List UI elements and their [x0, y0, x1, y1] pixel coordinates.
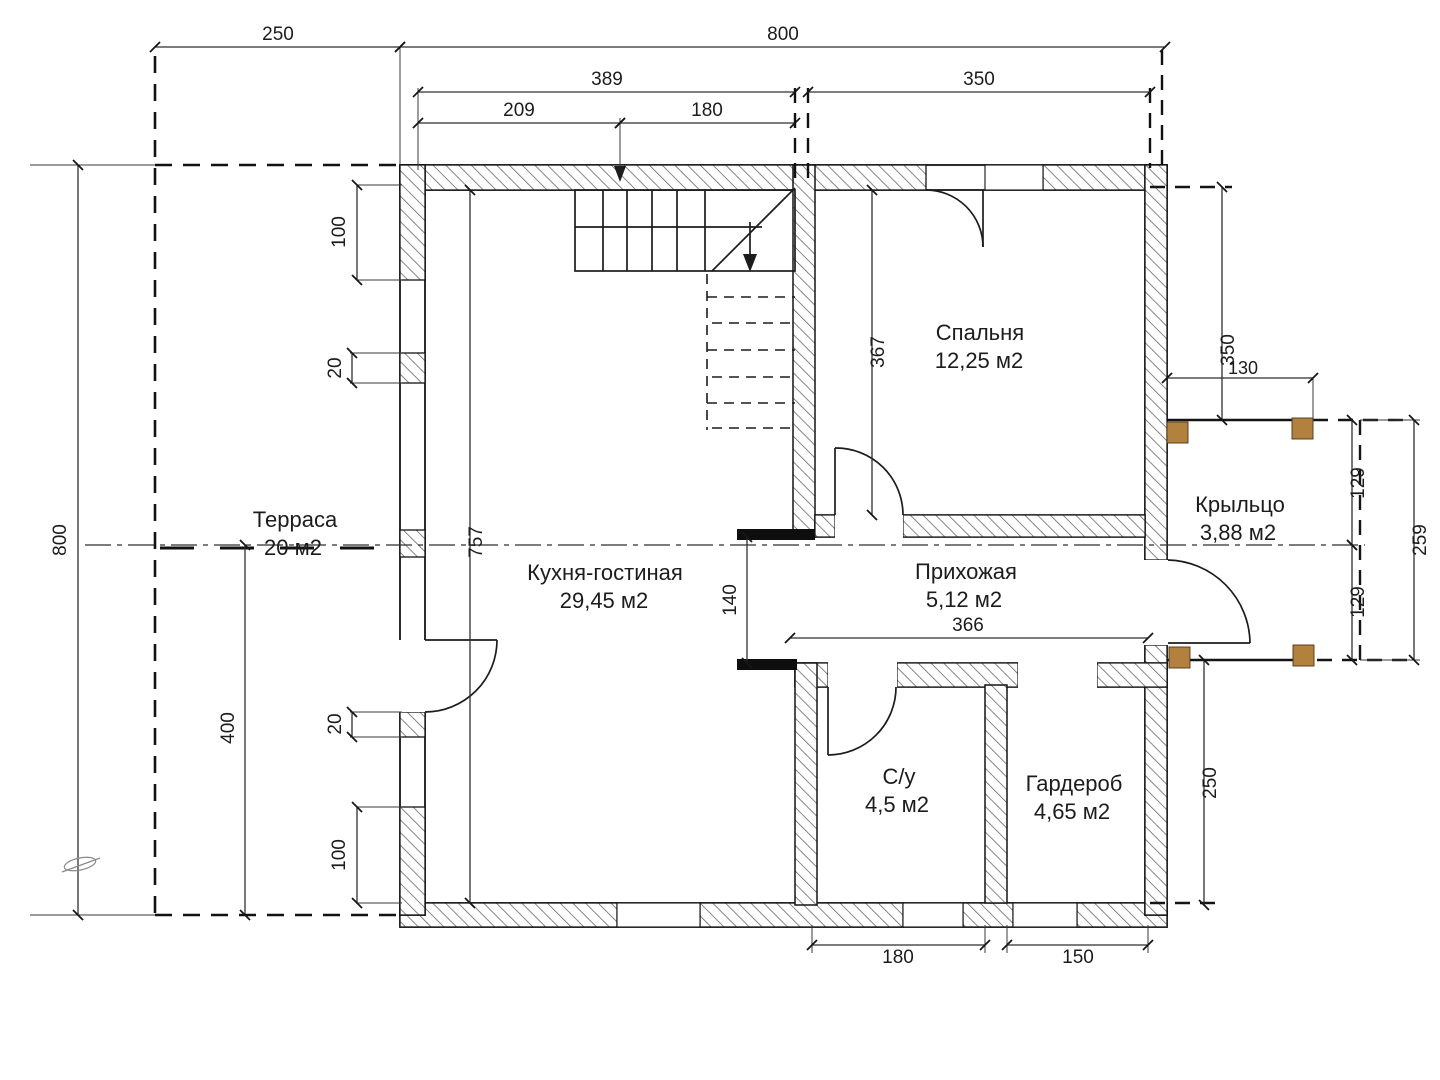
dim-label: 250 — [262, 24, 294, 45]
room-area: 4,5 м2 — [865, 792, 929, 817]
wall-segment — [815, 515, 835, 537]
door-bedroom-hall — [835, 448, 903, 515]
wall-segment — [1097, 663, 1167, 687]
porch-post — [1167, 422, 1188, 443]
room-name: Спальня — [936, 320, 1024, 345]
dim-label: 180 — [691, 100, 723, 121]
room-label-wardrobe: Гардероб 4,65 м2 — [1026, 771, 1123, 824]
dim-label: 350 — [1218, 334, 1239, 366]
exterior-wall-top — [400, 165, 1167, 190]
window-opening — [903, 903, 963, 927]
dim-label: 20 — [325, 357, 346, 378]
stair-down-arrow — [743, 254, 757, 272]
wall-bath-wardrobe — [985, 685, 1007, 903]
dim-label: 100 — [329, 216, 350, 248]
wall-bath-left — [795, 663, 817, 905]
porch-post — [1292, 418, 1313, 439]
dim-label: 129 — [1348, 586, 1369, 618]
staircase-lower-flight — [707, 274, 795, 430]
wall-segment — [400, 807, 425, 915]
staircase — [575, 188, 795, 272]
floor-plan: 250 800 389 350 209 180 366 180 150 130 … — [0, 0, 1440, 1080]
room-name: Гардероб — [1026, 771, 1123, 796]
porch-post — [1169, 647, 1190, 668]
room-label-porch: Крыльцо 3,88 м2 — [1195, 492, 1285, 545]
door-front — [1168, 560, 1250, 643]
room-area: 20 м2 — [264, 535, 322, 560]
door-opening-wardrobe — [1018, 661, 1097, 689]
exterior-wall-right — [1143, 165, 1169, 915]
wall-segment — [400, 165, 425, 280]
room-area: 3,88 м2 — [1200, 520, 1276, 545]
dim-label: 800 — [50, 524, 71, 556]
dim-label: 250 — [1200, 767, 1221, 799]
room-name: Терраса — [253, 507, 338, 532]
wall-segment — [400, 903, 617, 927]
dim-label: 259 — [1410, 524, 1431, 556]
dim-label: 367 — [868, 336, 889, 368]
wall-segment — [1145, 165, 1167, 560]
dim-label: 757 — [466, 526, 487, 558]
room-area: 4,65 м2 — [1034, 799, 1110, 824]
wall-segment — [700, 903, 903, 927]
room-label-terrace: Терраса 20 м2 — [253, 507, 338, 560]
window-opening — [1013, 903, 1077, 927]
dim-label: 20 — [325, 713, 346, 734]
door-bath — [828, 687, 896, 755]
wall-segment — [963, 903, 1013, 927]
wall-segment — [400, 165, 926, 190]
dim-label: 800 — [767, 24, 799, 45]
dim-label: 180 — [882, 947, 914, 968]
window-opening — [617, 903, 700, 927]
dim-label: 389 — [591, 69, 623, 90]
room-name: С/у — [883, 764, 916, 789]
wall-bedroom-hall — [815, 513, 1145, 539]
room-label-hallway: Прихожая 5,12 м2 — [915, 559, 1017, 612]
dim-label: 366 — [952, 615, 984, 636]
window-opening — [985, 165, 1043, 190]
door-bedroom-top — [926, 190, 983, 247]
wall-segment — [400, 530, 425, 557]
dim-label: 129 — [1348, 467, 1369, 499]
wall-kitchen-bedroom — [793, 165, 815, 537]
dim-label: 150 — [1062, 947, 1094, 968]
room-label-kitchen: Кухня-гостиная 29,45 м2 — [527, 560, 683, 613]
door-opening-terrace — [398, 640, 427, 712]
door-terrace — [425, 640, 497, 712]
door-opening-bedroom — [835, 513, 903, 539]
porch-post — [1293, 645, 1314, 666]
door-opening-bath — [828, 661, 897, 689]
hall-opening-stubs — [737, 529, 815, 670]
room-name: Прихожая — [915, 559, 1017, 584]
sketch-mark — [62, 855, 100, 873]
room-area: 29,45 м2 — [560, 588, 649, 613]
room-name: Крыльцо — [1195, 492, 1285, 517]
wall-segment — [400, 712, 425, 737]
wall-hall-bath — [795, 661, 1167, 689]
dim-label: 100 — [329, 839, 350, 871]
wall-segment — [903, 515, 1145, 537]
room-name: Кухня-гостиная — [527, 560, 683, 585]
room-label-bedroom: Спальня 12,25 м2 — [935, 320, 1024, 373]
room-label-bathroom: С/у 4,5 м2 — [865, 764, 929, 817]
room-area: 5,12 м2 — [926, 587, 1002, 612]
dim-label: 140 — [720, 584, 741, 616]
exterior-wall-bottom — [400, 903, 1167, 927]
wall-segment — [400, 353, 425, 383]
wall-segment — [897, 663, 1018, 687]
dim-label: 209 — [503, 100, 535, 121]
door-opening-front — [1143, 560, 1169, 645]
exterior-wall-left — [398, 165, 427, 915]
dim-label: 400 — [218, 712, 239, 744]
dim-label: 350 — [963, 69, 995, 90]
room-area: 12,25 м2 — [935, 348, 1024, 373]
